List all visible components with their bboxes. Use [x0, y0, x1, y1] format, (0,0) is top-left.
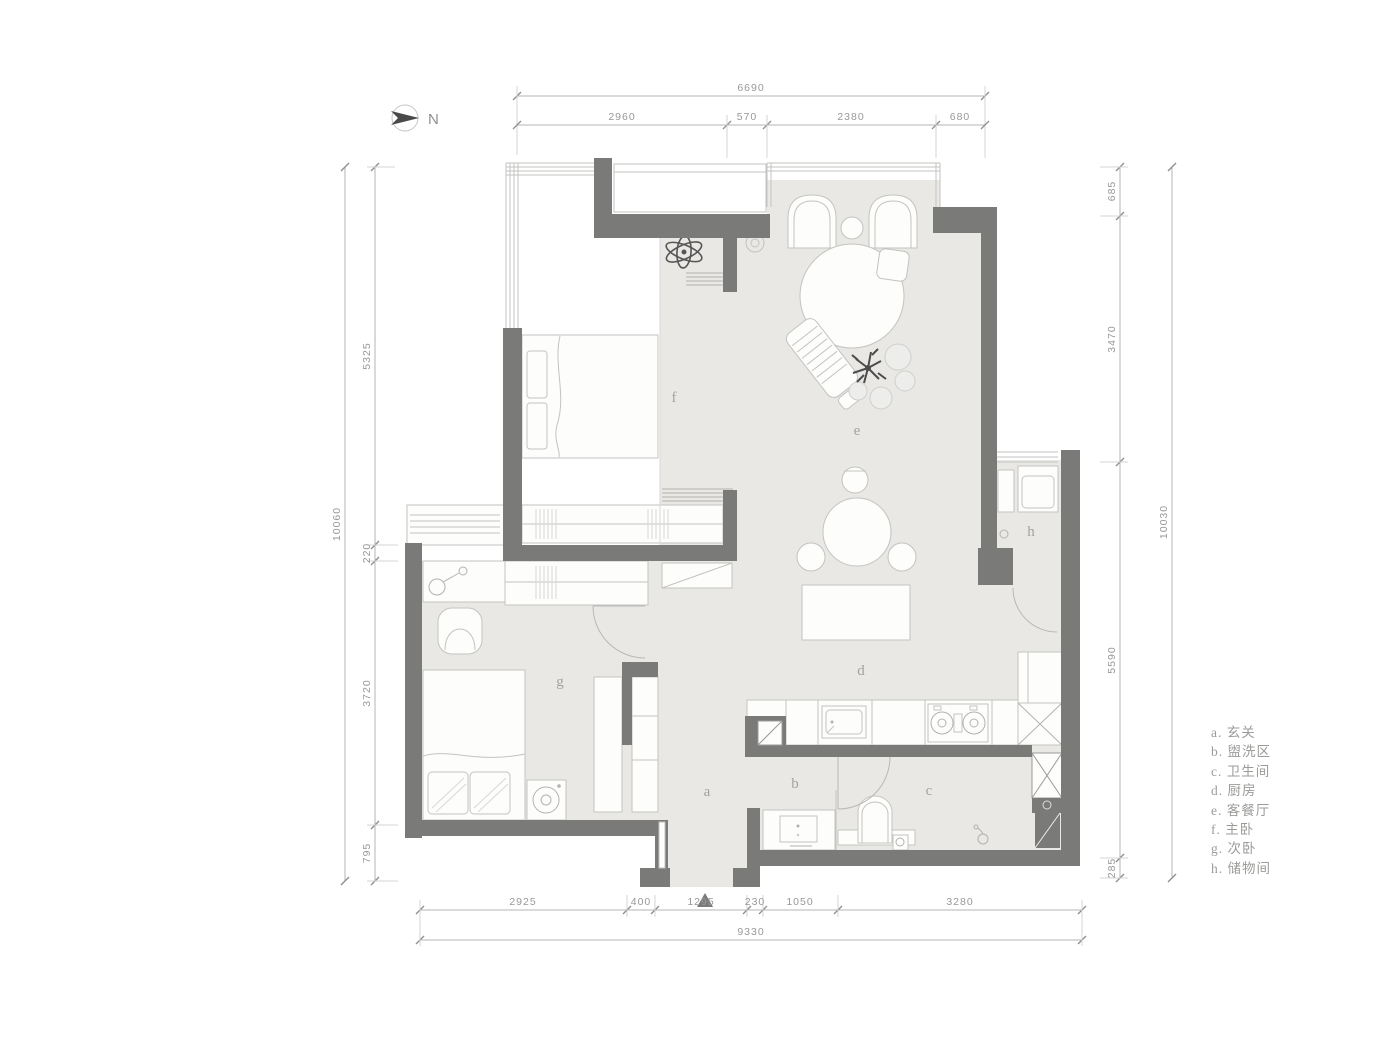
legend-item: h. 储物间 [1211, 859, 1271, 878]
svg-text:6690: 6690 [737, 82, 764, 94]
wardrobe-master [522, 505, 723, 543]
room-label-b: b [791, 776, 799, 792]
legend-item: c. 卫生间 [1211, 762, 1271, 781]
cushion [876, 248, 910, 282]
legend-item: d. 厨房 [1211, 781, 1271, 800]
dim-bottom: 2925 400 1295 230 1050 3280 9330 [416, 895, 1086, 946]
svg-text:2925: 2925 [509, 896, 536, 908]
chair-g [438, 608, 482, 654]
svg-text:2960: 2960 [608, 111, 635, 123]
svg-text:3280: 3280 [946, 896, 973, 908]
room-label-c: c [926, 783, 933, 799]
svg-text:570: 570 [737, 111, 758, 123]
north-arrow-icon [391, 111, 419, 125]
desk-g [423, 561, 505, 602]
legend-item: f. 主卧 [1211, 820, 1271, 839]
svg-text:5325: 5325 [361, 342, 373, 369]
room-label-g: g [556, 674, 564, 690]
svg-text:9330: 9330 [737, 926, 764, 938]
svg-text:5590: 5590 [1106, 646, 1118, 673]
legend-item: g. 次卧 [1211, 839, 1271, 858]
north-arrow: N [391, 105, 440, 131]
svg-text:10030: 10030 [1158, 505, 1170, 539]
svg-text:3720: 3720 [361, 679, 373, 706]
svg-text:685: 685 [1106, 181, 1118, 202]
side-table [841, 217, 863, 239]
shoe-cabinet [662, 563, 732, 588]
north-label: N [428, 111, 440, 128]
dim-right: 685 3470 5590 285 10030 [1100, 163, 1176, 882]
svg-text:1295: 1295 [687, 896, 714, 908]
room-label-h: h [1027, 524, 1035, 540]
fridge [1018, 652, 1062, 703]
floor-drain [893, 835, 908, 850]
legend-item: a. 玄关 [1211, 723, 1271, 742]
armchair-right [869, 195, 917, 248]
room-label-a: a [704, 784, 711, 800]
bed-g [423, 670, 525, 820]
legend-item: b. 盥洗区 [1211, 742, 1271, 761]
floor-plan-svg: a b c d e f g h N 6690 2960 570 [0, 0, 1397, 1041]
room-label-e: e [854, 423, 861, 439]
legend: a. 玄关 b. 盥洗区 c. 卫生间 d. 厨房 e. 客餐厅 f. 主卧 g… [1211, 723, 1271, 878]
entry-door-leaf [659, 822, 665, 868]
svg-text:400: 400 [631, 896, 652, 908]
dim-top: 6690 2960 570 2380 680 [513, 82, 989, 158]
svg-text:230: 230 [745, 896, 766, 908]
balcony-strip [614, 164, 766, 212]
svg-text:2380: 2380 [837, 111, 864, 123]
kitchen-island [802, 585, 910, 640]
svg-text:1050: 1050 [786, 896, 813, 908]
room-label-d: d [857, 663, 865, 679]
svg-text:10060: 10060 [331, 507, 343, 541]
svg-text:680: 680 [950, 111, 971, 123]
armchair-left [788, 195, 836, 248]
window-bedroom-g [407, 505, 505, 545]
svg-text:285: 285 [1106, 858, 1118, 879]
washing-machine [527, 780, 566, 820]
legend-item: e. 客餐厅 [1211, 801, 1271, 820]
svg-text:3470: 3470 [1106, 325, 1118, 352]
floor-plan-image: a b c d e f g h N 6690 2960 570 [0, 0, 1397, 1041]
svg-text:220: 220 [361, 543, 373, 564]
svg-text:795: 795 [361, 843, 373, 864]
dim-left: 10060 5325 220 3720 795 [331, 163, 398, 885]
room-label-f: f [672, 390, 677, 406]
cabinet-g [505, 561, 648, 605]
vanity [763, 810, 835, 850]
shaft [1032, 753, 1062, 798]
bed-master [522, 335, 658, 458]
